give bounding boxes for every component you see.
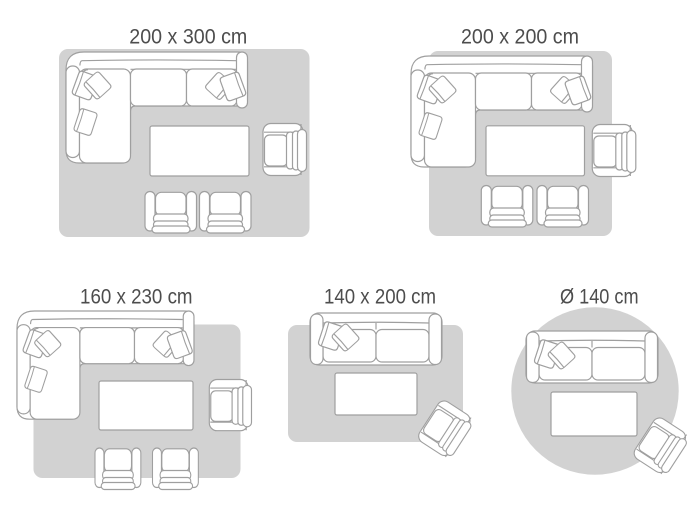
svg-text:200 x 300 cm: 200 x 300 cm: [129, 26, 247, 49]
svg-text:140 x 200 cm: 140 x 200 cm: [324, 286, 436, 309]
svg-text:200 x 200 cm: 200 x 200 cm: [461, 26, 579, 49]
svg-text:160 x 230 cm: 160 x 230 cm: [80, 286, 193, 309]
svg-text:Ø 140 cm: Ø 140 cm: [560, 286, 639, 309]
